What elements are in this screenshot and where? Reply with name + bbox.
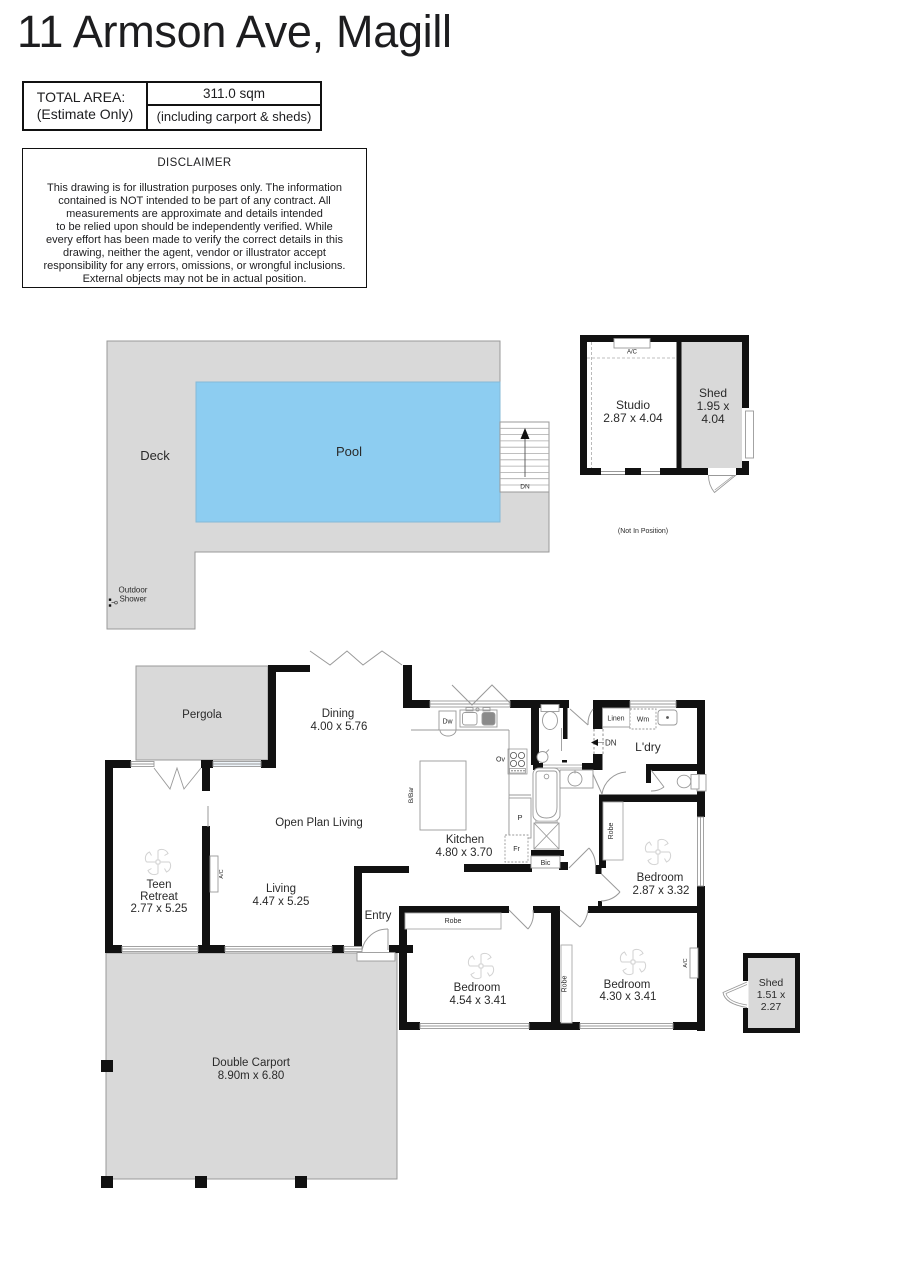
svg-text:Ov: Ov	[496, 757, 505, 764]
svg-text:Studio: Studio	[616, 398, 650, 412]
svg-text:Double Carport: Double Carport	[212, 1057, 291, 1069]
svg-text:1.95 x: 1.95 x	[697, 399, 730, 413]
svg-text:Shed: Shed	[759, 977, 784, 989]
svg-text:L'dry: L'dry	[635, 740, 661, 754]
svg-text:Bedroom: Bedroom	[454, 982, 501, 994]
svg-text:Robe: Robe	[445, 918, 462, 925]
svg-text:Kitchen: Kitchen	[446, 834, 484, 846]
svg-text:4.54 x 3.41: 4.54 x 3.41	[450, 995, 507, 1007]
svg-text:Bic: Bic	[541, 860, 551, 867]
svg-text:2.87 x 3.32: 2.87 x 3.32	[633, 885, 690, 897]
svg-text:A/C: A/C	[683, 958, 689, 967]
svg-text:Pool: Pool	[336, 444, 362, 459]
svg-text:DN: DN	[520, 484, 530, 491]
svg-text:Outdoor: Outdoor	[119, 586, 148, 595]
svg-text:4.30 x 3.41: 4.30 x 3.41	[600, 991, 657, 1003]
svg-text:2.27: 2.27	[761, 1001, 782, 1013]
svg-text:4.80 x 3.70: 4.80 x 3.70	[436, 847, 493, 859]
svg-text:Shower: Shower	[119, 595, 146, 604]
svg-text:B/Bar: B/Bar	[408, 786, 415, 803]
svg-text:Deck: Deck	[140, 448, 170, 463]
svg-text:Dining: Dining	[322, 708, 355, 720]
svg-text:A/C: A/C	[219, 869, 225, 878]
svg-text:4.04: 4.04	[701, 412, 725, 426]
svg-text:DN: DN	[605, 739, 617, 748]
svg-text:4.47 x 5.25: 4.47 x 5.25	[253, 896, 310, 908]
svg-text:Shed: Shed	[699, 386, 727, 400]
svg-text:Living: Living	[266, 883, 296, 895]
svg-text:Bedroom: Bedroom	[637, 872, 684, 884]
svg-text:Wm: Wm	[637, 717, 650, 724]
svg-text:Fr: Fr	[513, 846, 520, 853]
svg-text:8.90m x 6.80: 8.90m x 6.80	[218, 1070, 284, 1082]
svg-text:1.51 x: 1.51 x	[757, 989, 786, 1001]
svg-text:2.77 x 5.25: 2.77 x 5.25	[131, 903, 188, 915]
svg-text:A/C: A/C	[627, 350, 638, 356]
svg-text:Entry: Entry	[365, 910, 392, 922]
svg-text:Robe: Robe	[608, 823, 615, 840]
svg-text:Dw: Dw	[442, 719, 453, 726]
svg-text:Open Plan Living: Open Plan Living	[275, 817, 363, 829]
svg-text:Retreat: Retreat	[140, 891, 179, 903]
svg-text:Teen: Teen	[147, 879, 172, 891]
svg-text:Robe: Robe	[562, 976, 569, 993]
svg-text:Linen: Linen	[607, 716, 624, 723]
svg-text:Bedroom: Bedroom	[604, 979, 651, 991]
svg-text:Pergola: Pergola	[182, 709, 222, 721]
svg-text:4.00 x 5.76: 4.00 x 5.76	[311, 721, 368, 733]
svg-text:P: P	[517, 813, 522, 822]
svg-text:(Not In Position): (Not In Position)	[618, 528, 668, 535]
svg-text:2.87 x 4.04: 2.87 x 4.04	[603, 411, 663, 425]
